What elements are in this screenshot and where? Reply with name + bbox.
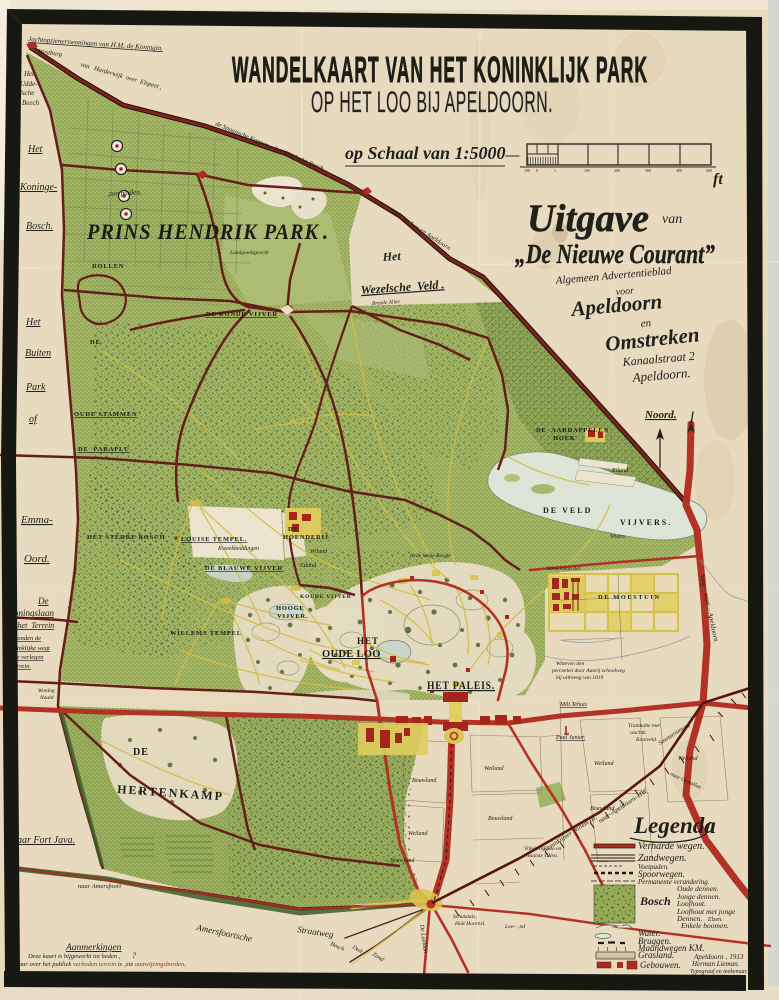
svg-text:.: .	[322, 219, 328, 244]
svg-text:OP HET LOO BIJ APELDOORN.: OP HET LOO BIJ APELDOORN.	[311, 86, 553, 119]
svg-text:PRINS HENDRIK PARK: PRINS HENDRIK PARK	[86, 219, 319, 244]
svg-text:Waar over het publiek verboden: Waar over het publiek verboden terrein i…	[14, 961, 186, 968]
svg-text:Vivers: Vivers	[610, 534, 626, 540]
svg-text:DE VELD: DE VELD	[543, 506, 592, 515]
svg-text:300: 300	[645, 168, 651, 173]
svg-text:Verharde wegen.: Verharde wegen.	[638, 841, 705, 852]
svg-text:Park: Park	[25, 382, 46, 393]
svg-text:OUDE LOO: OUDE LOO	[322, 649, 381, 660]
svg-text:of: of	[29, 414, 38, 425]
svg-text:0: 0	[536, 168, 538, 173]
svg-text:Koniveld.: Koniveld.	[635, 737, 657, 743]
svg-text:Legenda: Legenda	[633, 813, 716, 838]
svg-text:Bouwland: Bouwland	[488, 816, 513, 822]
svg-text:WANDELKAART VAN HET KONINKLIJK: WANDELKAART VAN HET KONINKLIJK PARK	[232, 49, 648, 90]
svg-text:500: 500	[706, 168, 712, 173]
svg-text:Naaiste Tillen.: Naaiste Tillen.	[525, 853, 558, 859]
svg-text:Wilhelmina der: Wilhelmina der	[547, 566, 582, 572]
svg-text:Paal Junior.: Paal Junior.	[555, 735, 585, 741]
svg-text:Witteven den: Witteven den	[556, 661, 585, 667]
svg-text:Bouwland: Bouwland	[412, 778, 437, 784]
svg-text:Bouwland: Bouwland	[390, 858, 415, 864]
svg-text:Buiten: Buiten	[25, 348, 51, 359]
svg-text:Udde-: Udde-	[20, 80, 38, 88]
svg-text:Emma-: Emma-	[20, 514, 53, 526]
svg-text:DE BLAUWE VIJVER: DE BLAUWE VIJVER	[205, 565, 283, 572]
svg-text:Het: Het	[25, 317, 41, 328]
svg-text:DE: DE	[90, 339, 101, 346]
svg-text:Woning: Woning	[38, 688, 55, 694]
svg-text:Kweekbeddingen: Kweekbeddingen	[217, 546, 259, 552]
svg-text:DE PARAPLU: DE PARAPLU	[78, 446, 130, 453]
svg-text:naar Amersfoort: naar Amersfoort	[78, 883, 121, 890]
svg-text:VIJVERS.: VIJVERS.	[620, 518, 672, 527]
svg-text:Enkele boomen.: Enkele boomen.	[680, 921, 729, 930]
svg-text:naar Fort Java.: naar Fort Java.	[12, 835, 75, 846]
svg-text:Aanmerkingen: Aanmerkingen	[65, 943, 122, 953]
svg-text:100: 100	[584, 168, 590, 173]
svg-text:Het: Het	[23, 70, 35, 78]
svg-text:Villa's bij Loo en: Villa's bij Loo en	[524, 846, 562, 852]
svg-text:Deze kaart is bijgewerkt tot h: Deze kaart is bijgewerkt tot heden ‚	[27, 953, 121, 960]
svg-text:HOEK: HOEK	[553, 435, 576, 442]
svg-text:WILLEMS TEMPEL: WILLEMS TEMPEL	[170, 630, 242, 637]
svg-text:DE AARDAPPELEN: DE AARDAPPELEN	[536, 427, 609, 434]
svg-text:1: 1	[554, 168, 556, 173]
svg-text:100: 100	[524, 168, 530, 173]
svg-text:De: De	[37, 596, 49, 606]
svg-text:Koninge-: Koninge-	[19, 182, 57, 193]
svg-text:In de lange Bergje: In de lange Bergje	[409, 553, 451, 559]
svg-text:Halt Hoornsl.: Halt Hoornsl.	[454, 921, 486, 927]
svg-text:Bosch.: Bosch.	[26, 221, 53, 232]
svg-text:HOOGE: HOOGE	[276, 605, 305, 612]
svg-text:Schutsluis‚: Schutsluis‚	[453, 914, 477, 920]
svg-text:DE MOESTUIN: DE MOESTUIN	[598, 594, 661, 601]
svg-text:Naald: Naald	[39, 695, 54, 701]
svg-text:HET: HET	[357, 636, 379, 646]
svg-text:Eiland: Eiland	[611, 468, 629, 474]
svg-text:Noord.: Noord.	[644, 409, 676, 421]
svg-text:200: 200	[614, 168, 620, 173]
svg-text:Wiland: Wiland	[310, 549, 328, 555]
svg-text:OUDE STAMMEN: OUDE STAMMEN	[74, 411, 137, 418]
svg-text:KOUDE VIJVER: KOUDE VIJVER	[300, 594, 352, 600]
svg-text:perceelen door Aanrij schoolwe: perceelen door Aanrij schoolweg	[551, 668, 625, 674]
svg-text:Beech: Beech	[22, 99, 40, 107]
svg-text:HOENDERIJ: HOENDERIJ	[283, 534, 329, 541]
svg-text:Loo– ‚nd: Loo– ‚nd	[504, 924, 525, 930]
svg-text:ft: ft	[713, 171, 723, 188]
svg-text:bij uitbreng van 1819: bij uitbreng van 1819	[556, 675, 604, 681]
svg-text:400: 400	[676, 168, 682, 173]
svg-text:Het: Het	[381, 249, 402, 264]
svg-text:DE: DE	[288, 526, 299, 533]
svg-text:„De Nieuwe Courant”: „De Nieuwe Courant”	[515, 239, 715, 269]
svg-text:DE: DE	[133, 747, 149, 758]
svg-text:Mili.Tehuis: Mili.Tehuis	[559, 702, 588, 708]
svg-text:HET STERRE BOSCH: HET STERRE BOSCH	[87, 534, 165, 541]
svg-text:wachtk.: wachtk.	[630, 730, 647, 736]
svg-text:Grasland.: Grasland.	[638, 950, 674, 960]
svg-text:Het: Het	[27, 144, 43, 155]
svg-text:Weiland: Weiland	[408, 831, 428, 837]
svg-text:op Schaal van 1:5000—: op Schaal van 1:5000—	[345, 143, 520, 163]
svg-text:Eiland: Eiland	[299, 563, 317, 569]
svg-text:lsche: lsche	[20, 89, 34, 97]
svg-text:van: van	[662, 212, 682, 227]
svg-text:?: ?	[132, 951, 136, 960]
svg-text:Weiland: Weiland	[484, 766, 504, 772]
svg-text:Typograaf en teekenaar.: Typograaf en teekenaar.	[690, 968, 748, 975]
svg-text:HET PALEIS.: HET PALEIS.	[427, 678, 495, 692]
svg-text:LOUISE TEMPEL.: LOUISE TEMPEL.	[181, 536, 247, 543]
svg-text:Landgoedsgracht: Landgoedsgracht	[229, 250, 269, 256]
svg-text:Uitgave: Uitgave	[527, 197, 649, 240]
svg-text:Herman Lieman.: Herman Lieman.	[691, 960, 740, 968]
svg-text:VIJVER.: VIJVER.	[277, 613, 308, 620]
svg-text:Oord.: Oord.	[24, 553, 50, 565]
svg-text:Gebouwen.: Gebouwen.	[640, 960, 681, 970]
svg-text:Weiland: Weiland	[678, 756, 698, 762]
svg-text:ROLLEN: ROLLEN	[92, 263, 124, 270]
svg-text:DE RONDE VIJVER: DE RONDE VIJVER	[206, 311, 278, 318]
svg-text:Weiland: Weiland	[594, 761, 614, 767]
svg-text:Bosch: Bosch	[639, 894, 671, 908]
svg-text:Tramhalte met: Tramhalte met	[628, 723, 660, 729]
